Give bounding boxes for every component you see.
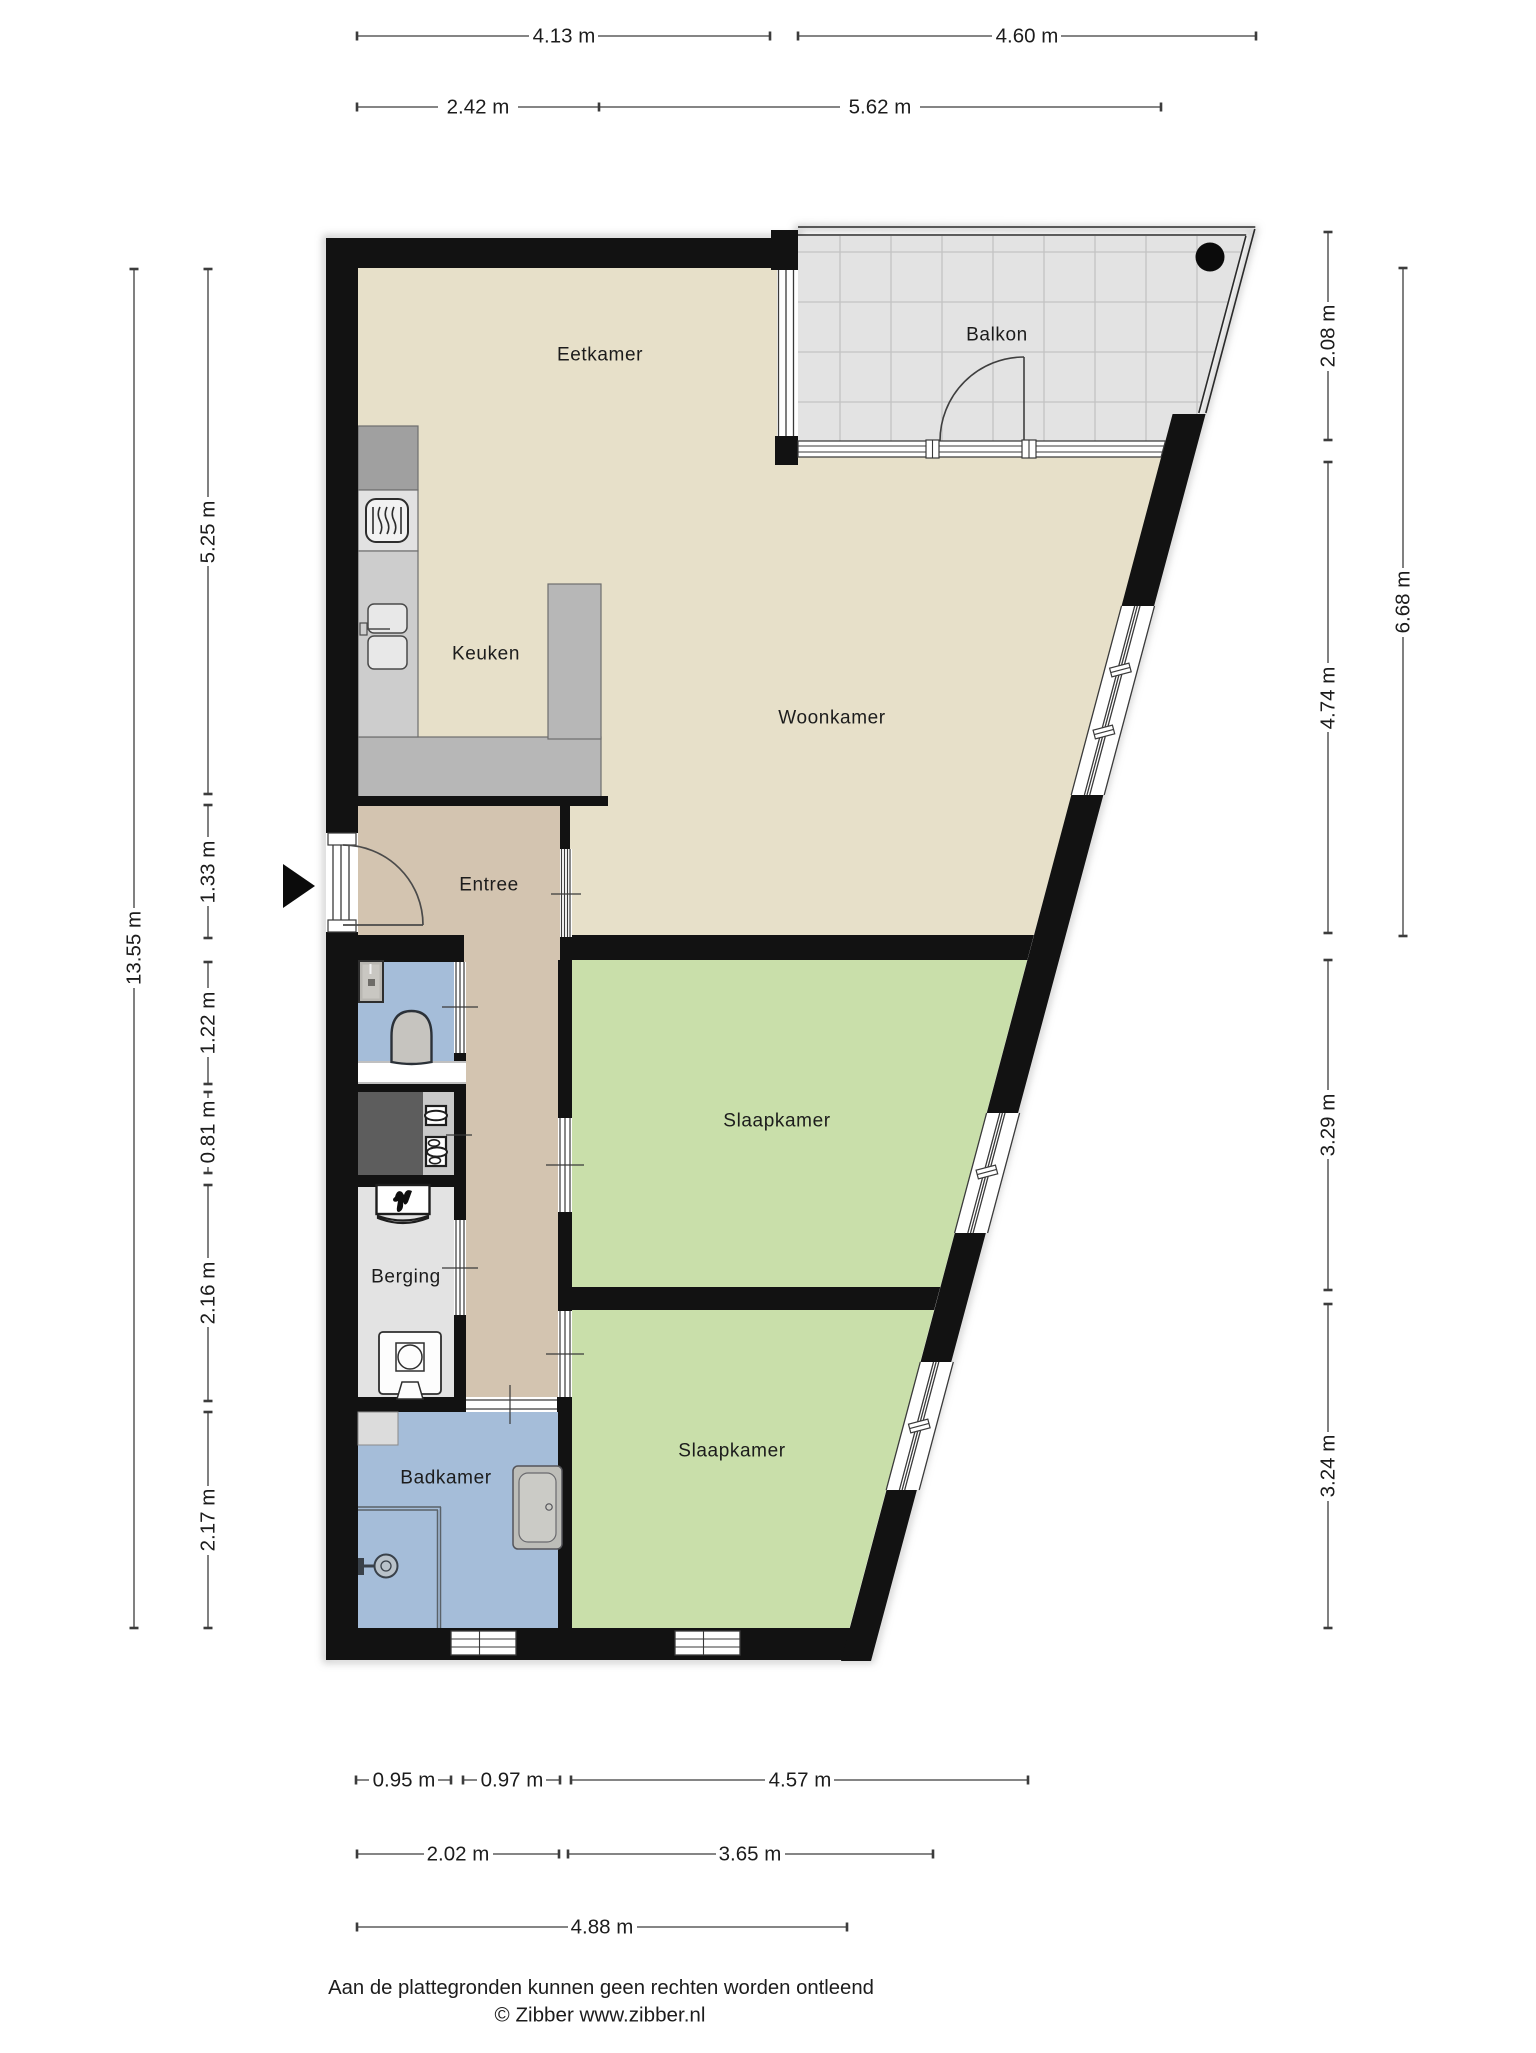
svg-text:Keuken: Keuken [452,644,520,665]
svg-text:Aan de plattegronden kunnen ge: Aan de plattegronden kunnen geen rechten… [328,1977,874,1999]
svg-text:4.74 m: 4.74 m [1317,667,1340,730]
svg-text:4.60 m: 4.60 m [996,25,1059,48]
svg-text:2.02 m: 2.02 m [427,1843,490,1866]
svg-text:Balkon: Balkon [966,325,1028,346]
svg-text:2.08 m: 2.08 m [1317,305,1340,368]
svg-text:2.42 m: 2.42 m [447,96,510,119]
svg-text:2.17 m: 2.17 m [197,1489,220,1552]
svg-text:Berging: Berging [371,1267,441,1288]
svg-text:Badkamer: Badkamer [400,1468,491,1489]
svg-text:5.62 m: 5.62 m [849,96,912,119]
svg-text:0.95 m: 0.95 m [373,1769,436,1792]
svg-text:3.65 m: 3.65 m [719,1843,782,1866]
svg-text:0.97 m: 0.97 m [481,1769,544,1792]
svg-text:0.81 m: 0.81 m [197,1101,220,1164]
svg-text:6.68 m: 6.68 m [1392,571,1415,634]
svg-text:4.13 m: 4.13 m [533,25,596,48]
svg-text:13.55 m: 13.55 m [123,911,146,985]
svg-text:© Zibber www.zibber.nl: © Zibber www.zibber.nl [495,2004,706,2027]
svg-text:3.24 m: 3.24 m [1317,1435,1340,1498]
svg-text:5.25 m: 5.25 m [197,501,220,564]
svg-text:Woonkamer: Woonkamer [778,708,886,729]
svg-text:4.57 m: 4.57 m [769,1769,832,1792]
svg-text:Slaapkamer: Slaapkamer [678,1441,785,1462]
svg-text:Slaapkamer: Slaapkamer [723,1111,830,1132]
svg-text:2.16 m: 2.16 m [197,1262,220,1325]
svg-text:Entree: Entree [459,875,519,896]
svg-text:3.29 m: 3.29 m [1317,1094,1340,1157]
svg-text:4.88 m: 4.88 m [571,1916,634,1939]
svg-text:1.33 m: 1.33 m [197,841,220,904]
svg-text:Eetkamer: Eetkamer [557,345,643,366]
svg-text:1.22 m: 1.22 m [197,992,220,1055]
